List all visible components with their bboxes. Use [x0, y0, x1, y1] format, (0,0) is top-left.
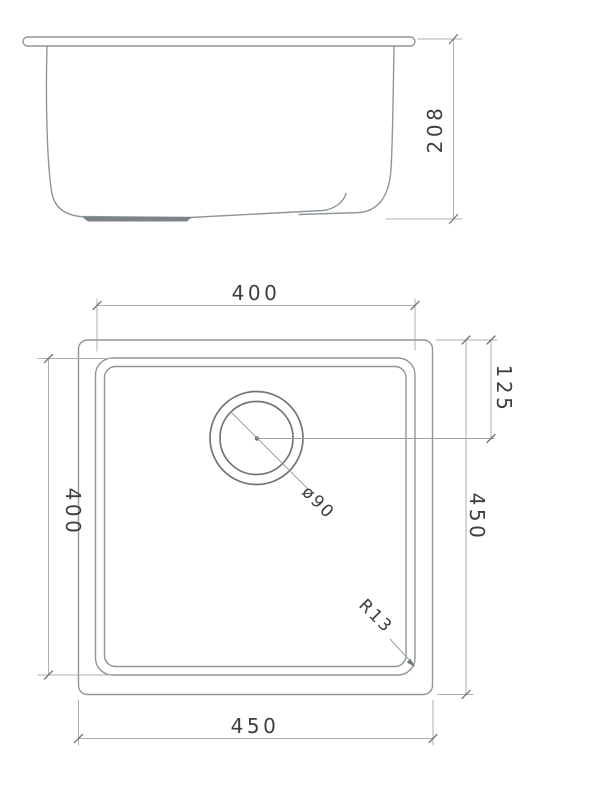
- side-drain-pad: [82, 217, 192, 222]
- bowl-outer-outline: [96, 358, 416, 675]
- drawing-svg: 208 ø90 R13: [0, 0, 605, 800]
- outer-rim-outline: [79, 340, 433, 695]
- top-view: ø90 R13 400 400: [38, 281, 516, 745]
- corner-radius-label: R13: [355, 595, 397, 637]
- dim-side-height: 208: [386, 35, 462, 224]
- dim-drain-offset-label: 125: [492, 365, 516, 414]
- side-view: 208: [23, 35, 462, 224]
- dim-overall-length: 450: [436, 336, 497, 699]
- dim-overall-width: 450: [75, 700, 438, 745]
- dim-overall-length-label: 450: [465, 493, 489, 542]
- side-left-wall: [46, 46, 190, 218]
- dim-overall-width-label: 450: [231, 714, 280, 738]
- drain-diameter-leader: [231, 412, 310, 491]
- side-rim: [23, 37, 415, 46]
- drain-diameter-label: ø90: [297, 482, 338, 523]
- dim-bowl-length: 400: [38, 355, 112, 680]
- dim-side-height-label: 208: [423, 105, 447, 154]
- dim-bowl-length-label: 400: [61, 488, 85, 537]
- side-right-wall: [299, 46, 394, 215]
- dim-bowl-width-label: 400: [232, 281, 281, 305]
- dim-drain-offset: 125: [487, 336, 516, 443]
- bowl-inner-outline: [105, 367, 407, 667]
- sink-technical-drawing: 208 ø90 R13: [0, 0, 605, 800]
